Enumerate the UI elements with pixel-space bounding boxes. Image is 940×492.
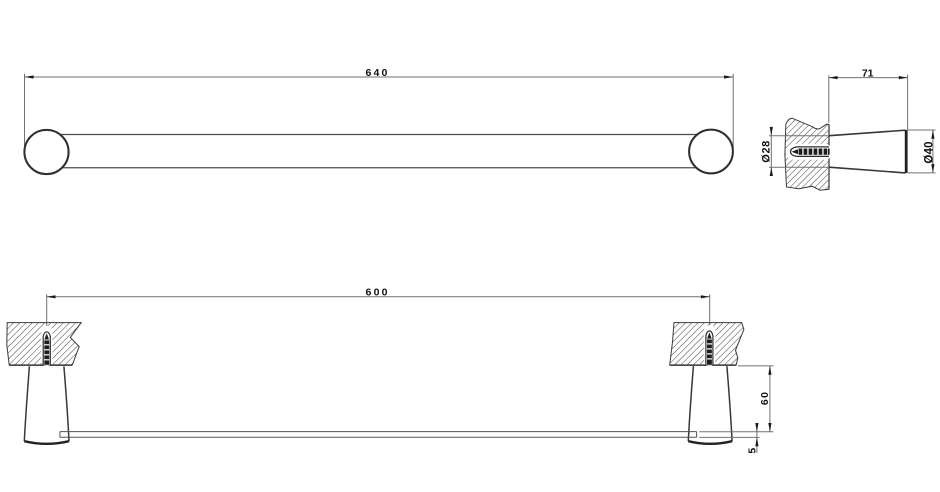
svg-text:Ø40: Ø40	[923, 141, 935, 163]
svg-text:5: 5	[746, 446, 758, 453]
svg-text:71: 71	[862, 67, 874, 79]
svg-text:60: 60	[759, 390, 771, 405]
svg-text:640: 640	[365, 67, 389, 79]
svg-text:600: 600	[366, 287, 390, 299]
svg-text:Ø28: Ø28	[761, 140, 773, 163]
